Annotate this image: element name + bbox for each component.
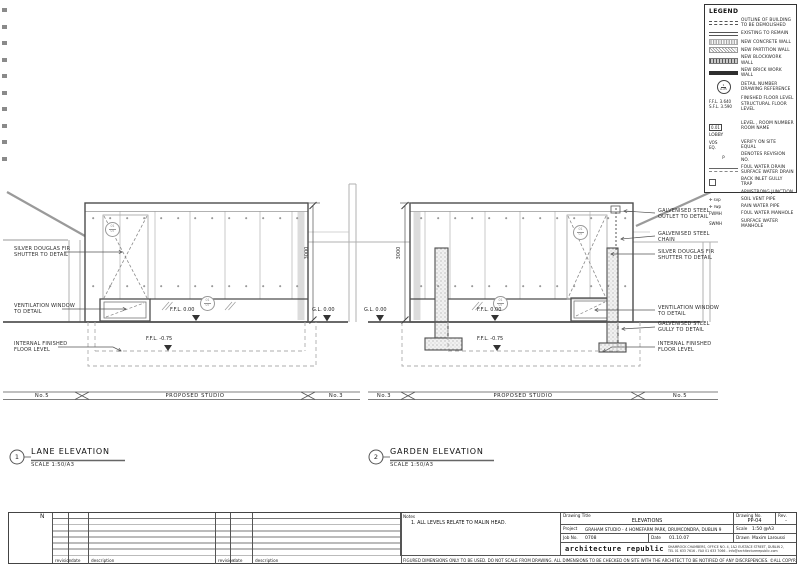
firm-name: architecture republic xyxy=(565,545,664,553)
detail-bubble: 0107 xyxy=(573,225,588,240)
legend-sym-existing xyxy=(709,30,738,37)
garden-gl-0: G.L. 0.00 xyxy=(364,307,387,313)
rev1-header-description: description xyxy=(89,556,216,564)
title-block: revision date description revision date … xyxy=(8,512,797,564)
lane-dim-3000: 3000 xyxy=(304,242,310,264)
legend-sym-rwp: ✛ rwp xyxy=(709,204,738,209)
notes-box: Notes 1. ALL LEVELS RELATE TO MALIN HEAD… xyxy=(401,513,561,556)
lane-elevation-drawing xyxy=(3,184,410,366)
drawing-sheet: 0107 0107 0107 0107 SILVER DOUGLAS FIR S… xyxy=(0,0,800,566)
garden-title-scale: SCALE 1:50/A3 xyxy=(390,462,433,468)
lane-banner-no3: No.3 xyxy=(315,393,357,399)
rev2-header-description: description xyxy=(253,556,401,564)
legend-sym-svp: ✛ svp xyxy=(709,197,738,202)
lane-banner-no5: No.5 xyxy=(18,393,66,399)
legend-sym-partition xyxy=(709,47,738,53)
drawn-label: Drawn xyxy=(734,534,750,540)
legend-sym-ffl: F.F.L. 3.640 S.F.L. 3.590 xyxy=(709,99,738,109)
garden-ffl-0: F.F.L. 0.00 xyxy=(477,307,501,313)
firm-address: SHAMROCK CHAMBERS, OFFICE NO. 4, 1&2 EUS… xyxy=(668,545,784,553)
project-label: Project xyxy=(561,525,577,531)
disclaimer-text: FIGURED DIMENSIONS ONLY TO BE USED. DO N… xyxy=(403,558,796,563)
edge-marks xyxy=(2,8,7,161)
legend-sym-brick xyxy=(709,71,738,75)
job-no-label: Job No. xyxy=(561,534,578,540)
legend-sym-swmh: SWMH xyxy=(709,221,738,226)
garden-label-chain: GALVENISED STEEL CHAIN xyxy=(658,231,710,244)
legend-box: LEGEND OUTLINE OF BUILDING TO BE DEMOLIS… xyxy=(704,4,797,193)
rev-value: - xyxy=(776,518,796,524)
lane-title-scale: SCALE 1:50/A3 xyxy=(31,462,74,468)
lane-title-number: 1 xyxy=(10,453,24,461)
lane-ffl-minus075: F.F.L. -0.75 xyxy=(146,336,172,342)
lane-label-vent-window: VENTILATION WINDOW TO DETAIL xyxy=(14,303,75,316)
elevation-linework xyxy=(0,0,800,566)
garden-label-outlet: GALVENISED STEEL OUTLET TO DETAIL xyxy=(658,208,710,221)
garden-label-shutter: SILVER DOUGLAS FIR SHUTTER TO DETAIL xyxy=(658,249,714,262)
rev1-header-revision: revision xyxy=(53,556,69,564)
lane-ffl-0: F.F.L. 0.00 xyxy=(170,307,194,313)
garden-fixing-dots-top xyxy=(420,217,628,220)
garden-fixing-dots-bottom xyxy=(420,285,628,288)
legend-sym-vos: VOS EQ. xyxy=(709,140,738,150)
legend-sym-gully-trap xyxy=(709,179,738,186)
lane-fixing-dots-top xyxy=(92,217,304,220)
legend-title: LEGEND xyxy=(709,8,794,15)
garden-banner-no3: No.3 xyxy=(368,393,400,399)
garden-title: GARDEN ELEVATION xyxy=(390,447,484,456)
project-value: GRAHAM STUDIO - 4 HOMEFARM PARK, DRUMCON… xyxy=(561,525,733,532)
lane-banner-proposed-studio: PROPOSED STUDIO xyxy=(90,393,300,399)
garden-dim-3000: 3000 xyxy=(396,242,402,264)
legend-sym-drains xyxy=(709,166,738,174)
lane-gl-0: G.L. 0.00 xyxy=(312,307,335,313)
garden-label-internal-ffl: INTERNAL FINISHED FLOOR LEVEL xyxy=(658,341,711,354)
drawing-title-label: Drawing Title xyxy=(561,512,591,518)
legend-sym-detail-ref: 1A-25 xyxy=(709,80,738,94)
garden-title-number: 2 xyxy=(369,453,383,461)
lane-title: LANE ELEVATION xyxy=(31,447,110,456)
north-box xyxy=(9,513,53,563)
garden-banner-proposed-studio: PROPOSED STUDIO xyxy=(415,393,631,399)
garden-ffl-minus075: F.F.L. -0.75 xyxy=(477,336,503,342)
lane-label-internal-ffl: INTERNAL FINISHED FLOOR LEVEL xyxy=(14,341,67,354)
garden-banner-no5: No.5 xyxy=(645,393,715,399)
rev2-header-revision: revision xyxy=(216,556,231,564)
legend-sym-demolished xyxy=(709,20,738,27)
legend-sym-revision: P xyxy=(709,155,738,160)
drawing-no: PP-04 xyxy=(734,518,775,524)
date-value: 01.10.07 xyxy=(649,534,733,541)
detail-bubble: 0107 xyxy=(200,296,215,311)
rev2-header-date: date xyxy=(231,556,253,564)
drawing-title: ELEVATIONS xyxy=(561,518,733,524)
detail-bubble: 0107 xyxy=(105,222,120,237)
legend-sym-fwmh: FWMH xyxy=(709,211,738,216)
lane-fixing-dots-bottom xyxy=(92,285,304,288)
lane-label-shutter: SILVER DOUGLAS FIR SHUTTER TO DETAIL xyxy=(14,246,70,259)
note-text: 1. ALL LEVELS RELATE TO MALIN HEAD. xyxy=(401,519,560,526)
garden-label-gully: GALVENISED STEEL GULLY TO DETAIL xyxy=(658,321,710,334)
date-label: Date xyxy=(649,534,661,540)
rev1-header-date: date xyxy=(69,556,89,564)
legend-sym-room: 0.01LOBBY xyxy=(709,114,738,138)
legend-sym-concrete xyxy=(709,39,738,45)
north-label: N xyxy=(40,513,45,520)
scale-label: Scale xyxy=(734,525,747,531)
garden-elevation-drawing xyxy=(368,167,766,366)
legend-sym-blockwork xyxy=(709,58,738,64)
garden-label-vent-window: VENTILATION WINDOW TO DETAIL xyxy=(658,305,719,318)
